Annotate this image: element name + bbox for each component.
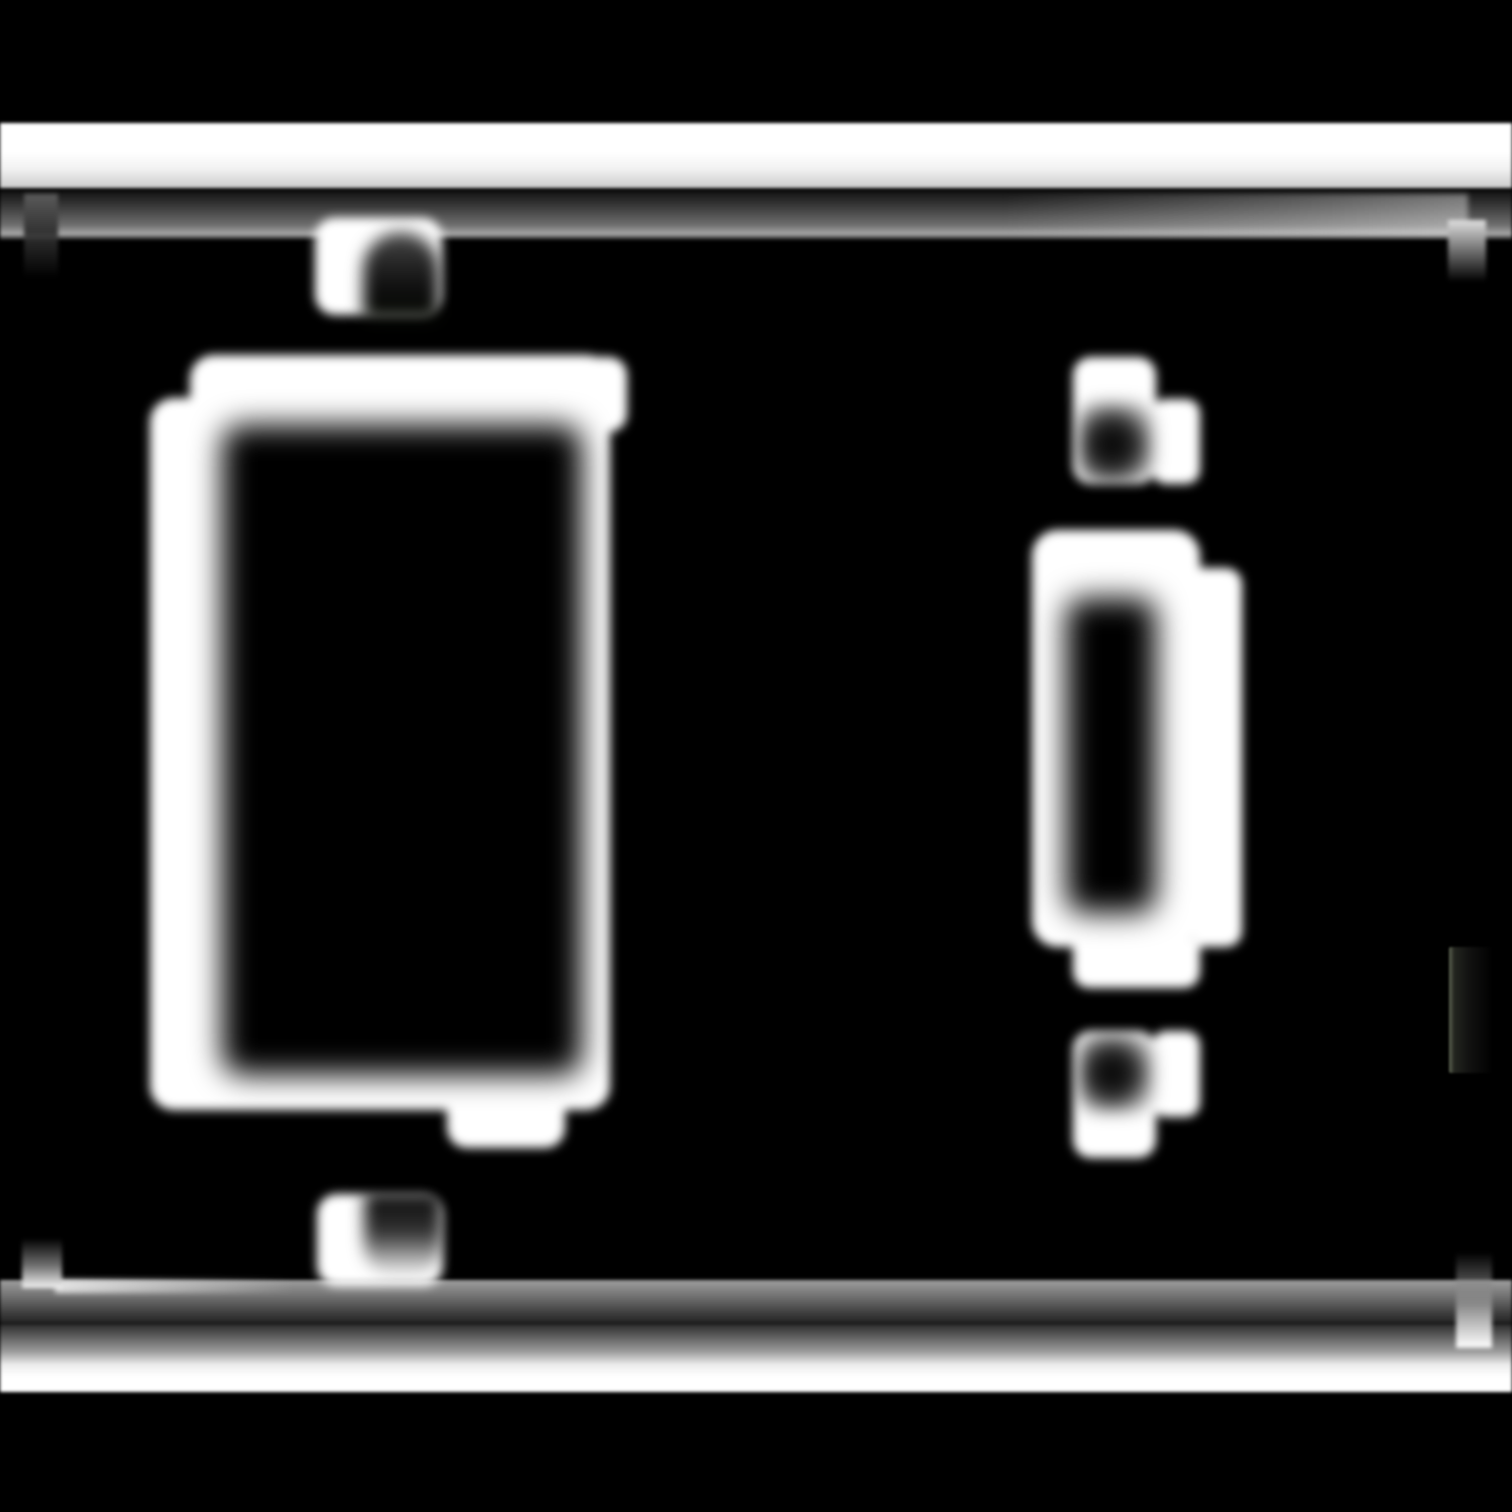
mask-canvas (0, 0, 1512, 1512)
right-edge-ghost-mark (1449, 947, 1493, 1073)
layer-artifacts (0, 0, 1512, 1512)
